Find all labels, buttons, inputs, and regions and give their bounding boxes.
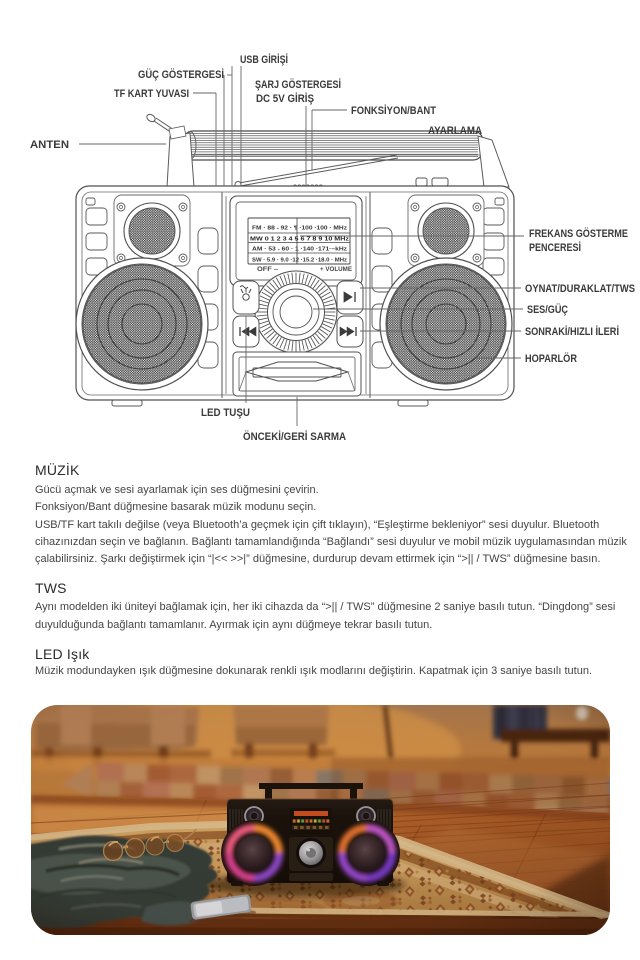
svg-text:+ VOLUME: + VOLUME: [320, 266, 352, 273]
svg-text:SW · 5.9 · 9.0 ·12 ·15.2 ·18.0: SW · 5.9 · 9.0 ·12 ·15.2 ·18.0 · MHz: [252, 258, 347, 264]
svg-text:GÜÇ GÖSTERGESİ: GÜÇ GÖSTERGESİ: [138, 68, 224, 81]
svg-text:OFF –: OFF –: [257, 266, 279, 273]
svg-text:FONKSİYON/BANT: FONKSİYON/BANT: [351, 104, 436, 117]
svg-text:ÖNCEKİ/GERİ SARMA: ÖNCEKİ/GERİ SARMA: [243, 430, 346, 443]
svg-text:AYARLAMA: AYARLAMA: [428, 125, 482, 137]
svg-text:MW 0 1 2 3 4 5 6 7 8 9 10 MHz: MW 0 1 2 3 4 5 6 7 8 9 10 MHz: [250, 237, 350, 243]
svg-text:DC 5V GİRİŞ: DC 5V GİRİŞ: [256, 92, 314, 105]
svg-text:PENCERESİ: PENCERESİ: [529, 241, 581, 254]
svg-text:OYNAT/DURAKLAT/TWS: OYNAT/DURAKLAT/TWS: [525, 283, 635, 295]
svg-text:ANTEN: ANTEN: [30, 139, 69, 151]
svg-text:AM · 53 - 60 · 1 ·140 ·171·–kH: AM · 53 - 60 · 1 ·140 ·171·–kHz: [252, 247, 347, 253]
svg-text:USB GİRİŞİ: USB GİRİŞİ: [240, 53, 288, 66]
svg-text:SONRAKİ/HIZLI İLERİ: SONRAKİ/HIZLI İLERİ: [525, 325, 619, 338]
svg-text:SES/GÜÇ: SES/GÜÇ: [527, 303, 568, 316]
svg-text:HOPARLÖR: HOPARLÖR: [525, 352, 577, 365]
svg-text:LED TUŞU: LED TUŞU: [201, 407, 250, 419]
svg-text:FREKANS GÖSTERME: FREKANS GÖSTERME: [529, 227, 628, 240]
svg-text:ŞARJ GÖSTERGESİ: ŞARJ GÖSTERGESİ: [255, 78, 341, 91]
svg-text:TF KART YUVASI: TF KART YUVASI: [114, 88, 189, 100]
svg-text:FM · 88 - 92 · ¶ ·100 ·100 · M: FM · 88 - 92 · ¶ ·100 ·100 · MHz: [252, 226, 347, 232]
